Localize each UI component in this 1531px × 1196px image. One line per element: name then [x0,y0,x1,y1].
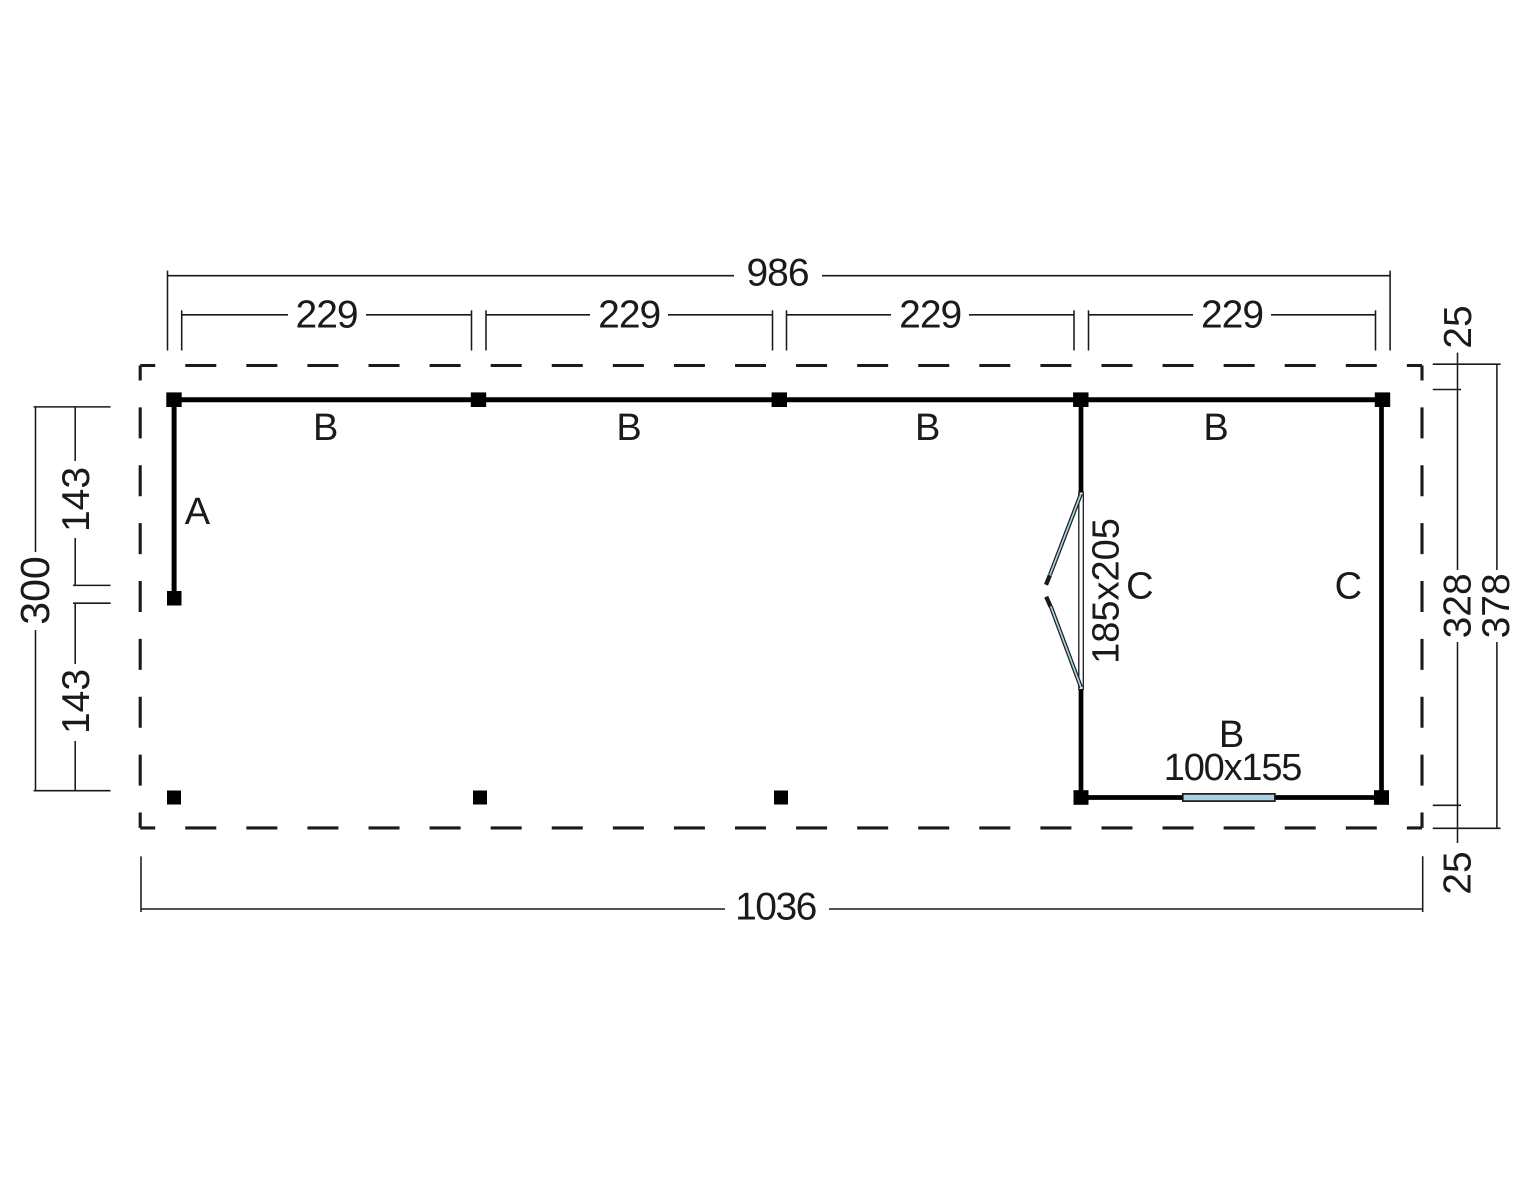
svg-text:100x155: 100x155 [1164,747,1301,789]
svg-text:B: B [915,407,940,449]
svg-text:300: 300 [12,556,58,624]
svg-text:B: B [1203,407,1228,449]
svg-text:A: A [185,491,211,533]
svg-text:229: 229 [899,294,961,337]
svg-text:143: 143 [55,669,98,734]
svg-text:C: C [1335,566,1362,608]
svg-text:229: 229 [598,294,660,337]
svg-text:378: 378 [1475,573,1518,638]
svg-text:143: 143 [55,467,98,532]
svg-text:25: 25 [1437,305,1480,348]
svg-text:328: 328 [1437,573,1480,638]
svg-text:229: 229 [296,294,358,337]
svg-text:B: B [313,407,338,449]
svg-text:1036: 1036 [735,886,816,929]
svg-text:C: C [1126,566,1153,608]
svg-text:25: 25 [1436,851,1479,894]
svg-text:986: 986 [746,252,808,295]
svg-text:229: 229 [1201,294,1263,337]
svg-text:B: B [616,407,641,449]
svg-text:185x205: 185x205 [1086,518,1128,664]
